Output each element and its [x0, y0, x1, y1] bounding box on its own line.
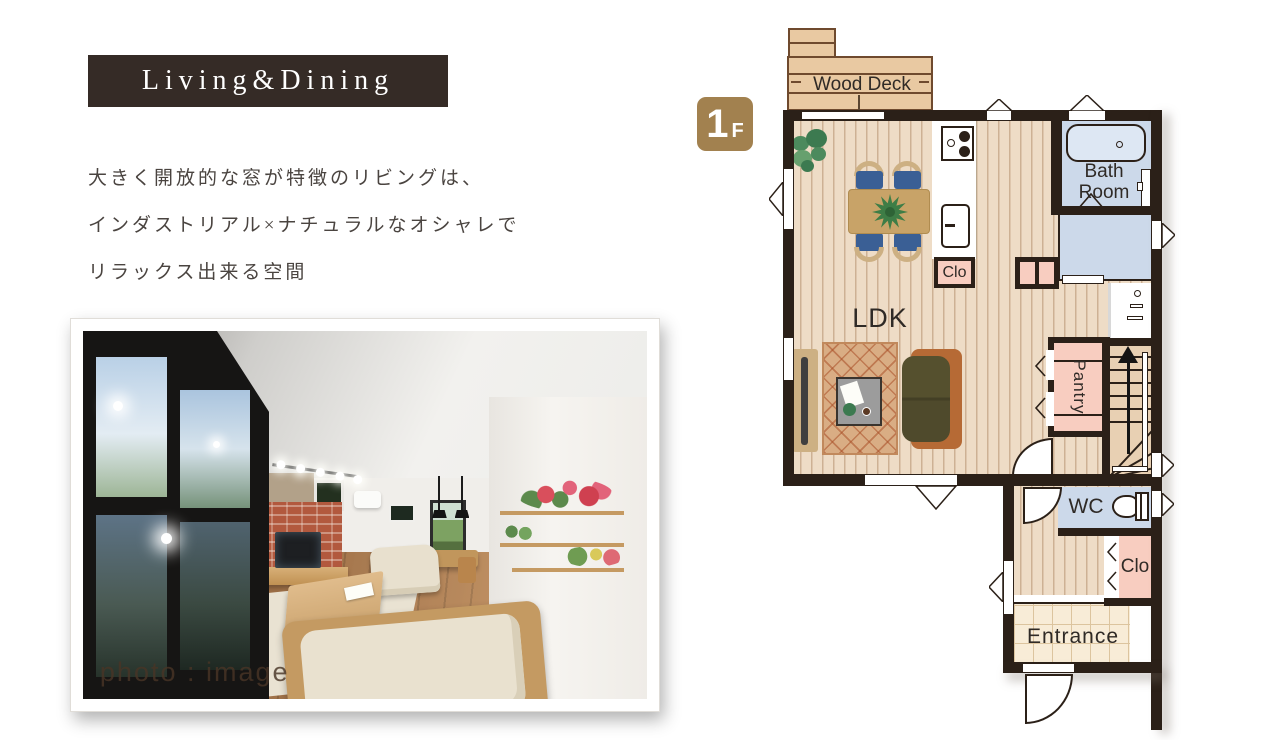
photo-dining-chair: [458, 557, 476, 583]
ldk-plant-icon: [806, 129, 827, 148]
washroom-window: [1151, 220, 1162, 250]
bathroom-label: Bath Room: [1062, 161, 1146, 203]
wall-right: [1151, 110, 1162, 730]
hall-closet-label: Clo: [1121, 556, 1150, 578]
floor-number: 1: [706, 104, 728, 144]
description-line: インダストリアル×ナチュラルなオシャレで: [88, 202, 608, 249]
outswing-door-icon: [915, 486, 957, 510]
stove: [941, 126, 974, 161]
ldk-plant-icon: [811, 147, 826, 161]
photo-tv: [275, 532, 321, 569]
stairs-handrail: [1112, 466, 1148, 472]
bathroom-label-line: Room: [1062, 182, 1146, 203]
top-window-small: [986, 110, 1012, 121]
page: Living&Dining 大きく開放的な窓が特徴のリビングは、 インダストリア…: [0, 0, 1280, 740]
stove-burner: [959, 131, 970, 142]
entrance-door-arc: [1025, 674, 1073, 724]
photo-shelf: [512, 568, 625, 572]
wc-label: WC: [1062, 495, 1110, 519]
casement-window-icon: [769, 182, 783, 216]
entrance-step-band: [1014, 595, 1115, 602]
tv: [801, 357, 808, 445]
photo-pendant-light: [438, 476, 440, 511]
bath-window: [1068, 110, 1106, 121]
stairs-handrail: [1142, 352, 1148, 471]
refrigerator: [941, 204, 970, 248]
photo-window-pane: [96, 515, 167, 677]
entrance-side-step: [1130, 602, 1151, 663]
vanity-handle: [1127, 316, 1143, 320]
storage-closet-divider: [1035, 259, 1039, 287]
kitchen-closet-label: Clo: [942, 264, 966, 282]
folding-door-icon: [1106, 541, 1117, 563]
entrance-label: Entrance: [1018, 625, 1128, 649]
wall-kitchen-bath: [1051, 116, 1062, 215]
wood-deck-label: Wood Deck: [797, 74, 927, 96]
description-line: リラックス出来る空間: [88, 249, 608, 296]
photo-caption: photo : image: [100, 657, 290, 688]
bathtub: [1066, 124, 1146, 162]
casement-window-icon: [1162, 493, 1174, 516]
description-line: 大きく開放的な窓が特徴のリビングは、: [88, 155, 608, 202]
window-vent-icon: [1070, 95, 1104, 111]
photo-ac-unit: [354, 491, 381, 508]
casement-window-icon: [1162, 223, 1175, 248]
stairs-arrow-shaft: [1127, 362, 1130, 454]
photo-window-pane: [96, 357, 167, 497]
folding-door-icon: [1106, 570, 1117, 592]
lens-flare: [113, 401, 123, 411]
ldk-label: LDK: [845, 303, 915, 334]
floor-badge: 1 F: [697, 97, 753, 151]
wall-closet-bottom: [1104, 598, 1151, 606]
casement-window-icon: [989, 572, 1003, 602]
vanity-handle: [1130, 304, 1143, 308]
wall-pantry-stairs: [1102, 337, 1110, 478]
sofa-cushions: [902, 356, 950, 442]
washroom: [1058, 215, 1151, 281]
left-window-upper: [783, 168, 794, 230]
photo-window-wall: [83, 331, 269, 699]
toilet-tank-line: [1140, 494, 1142, 519]
photo-pendant-shade: [455, 510, 470, 518]
hall-closet: Clo: [1119, 534, 1151, 600]
photo-shelf: [500, 511, 624, 515]
terrace-door: [864, 474, 958, 486]
wall-wc-bottom: [1058, 528, 1151, 536]
description-text: 大きく開放的な窓が特徴のリビングは、 インダストリアル×ナチュラルなオシャレで …: [88, 155, 608, 296]
photo-mid-window: [389, 504, 415, 522]
stove-burner: [959, 146, 970, 157]
ldk-plant-icon: [801, 160, 814, 172]
dining-chair-seat: [856, 171, 883, 189]
wall-bath-washroom: [1056, 206, 1151, 215]
interior-photo-scene: photo : image: [83, 331, 647, 699]
vanity-unit: [1108, 283, 1151, 340]
wall-stairs-top: [1104, 338, 1151, 346]
lens-flare: [161, 533, 172, 544]
floor-suffix: F: [732, 121, 744, 141]
entrance-door-opening: [1022, 663, 1075, 673]
photo-plant-green: [498, 524, 537, 541]
hall-window: [1003, 560, 1014, 615]
wood-deck-extension-line: [790, 42, 834, 44]
bathroom-label-line: Bath: [1062, 161, 1146, 182]
refrigerator-handle: [945, 224, 955, 227]
section-header: Living&Dining: [88, 55, 448, 107]
bathtub-drain: [1116, 141, 1123, 148]
photo-plant-mixed: [562, 546, 624, 566]
deck-window: [801, 111, 885, 120]
stairs-arrow-head: [1118, 346, 1138, 363]
stove-burner-small: [947, 139, 955, 147]
coffee-cup-icon: [862, 407, 871, 416]
left-window-lower: [783, 337, 794, 381]
vanity-faucet: [1134, 290, 1141, 297]
table-plant-icon: [872, 194, 908, 230]
stairs-side-door: [1151, 452, 1162, 478]
interior-photo: photo : image: [70, 318, 660, 712]
coffee-table-plant-icon: [843, 403, 856, 416]
washroom-sliding-opening: [1062, 275, 1104, 284]
wall-left: [783, 110, 794, 486]
casement-window-icon: [1162, 454, 1174, 477]
wc-window: [1151, 490, 1162, 518]
photo-pendant-shade: [432, 510, 447, 518]
dining-chair-seat: [894, 171, 921, 189]
section-title: Living&Dining: [142, 65, 394, 97]
photo-window-pane: [180, 522, 251, 669]
window-vent-icon: [986, 99, 1012, 111]
photo-pendant-light: [461, 476, 463, 511]
toilet-tank: [1135, 492, 1149, 521]
kitchen-closet: Clo: [934, 257, 975, 288]
photo-window-pane: [180, 390, 251, 508]
